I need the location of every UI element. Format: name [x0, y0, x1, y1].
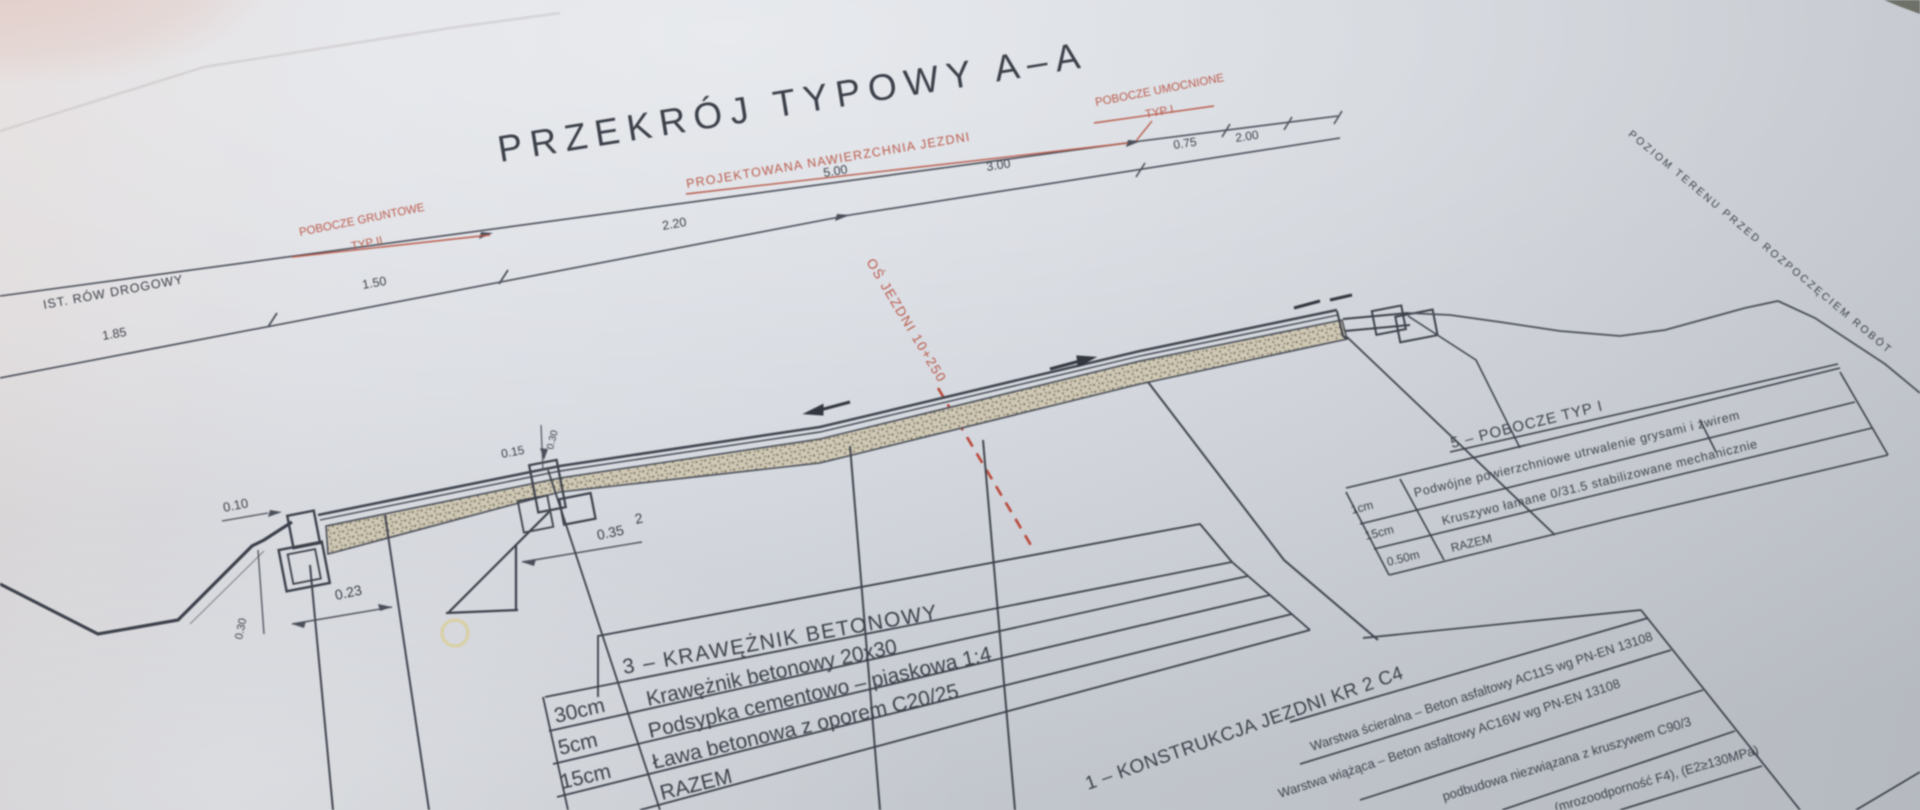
svg-text:15cm: 15cm	[558, 760, 613, 794]
svg-text:15cm: 15cm	[1363, 522, 1395, 543]
svg-text:0.50m: 0.50m	[1385, 547, 1421, 569]
svg-text:2: 2	[633, 510, 644, 527]
svg-text:1.50: 1.50	[361, 274, 387, 292]
svg-text:OŚ JEZDNI 10+250: OŚ JEZDNI 10+250	[863, 256, 949, 386]
svg-text:0.23: 0.23	[333, 582, 363, 603]
svg-text:PRZEKRÓJ TYPOWY A–A: PRZEKRÓJ TYPOWY A–A	[495, 34, 1091, 170]
svg-text:0.10: 0.10	[222, 495, 250, 515]
svg-text:2.20: 2.20	[661, 215, 687, 233]
svg-text:0.30: 0.30	[233, 617, 249, 640]
svg-text:5 – POBOCZE TYP I: 5 – POBOCZE TYP I	[1449, 398, 1605, 452]
svg-text:0.15: 0.15	[500, 443, 526, 461]
svg-text:30cm: 30cm	[552, 694, 607, 728]
svg-text:IST. RÓW DROGOWY: IST. RÓW DROGOWY	[42, 271, 185, 312]
svg-text:PROJEKTOWANA NAWIERZCHNIA JEZD: PROJEKTOWANA NAWIERZCHNIA JEZDNI	[685, 130, 971, 191]
svg-text:1.85: 1.85	[101, 325, 127, 343]
svg-text:POBOCZE GRUNTOWE: POBOCZE GRUNTOWE	[298, 202, 426, 239]
svg-text:2.00: 2.00	[1234, 128, 1259, 145]
svg-text:1cm: 1cm	[1349, 498, 1374, 517]
svg-text:0.30: 0.30	[545, 429, 560, 451]
svg-text:RAZEM: RAZEM	[658, 765, 735, 805]
svg-text:0.35: 0.35	[595, 522, 625, 543]
svg-text:0.75: 0.75	[1172, 135, 1197, 152]
svg-text:POZIOM TERENU PRZED ROZPOCZĘCI: POZIOM TERENU PRZED ROZPOCZĘCIEM ROBÓT	[1626, 128, 1896, 357]
svg-text:POBOCZE UMOCNIONE: POBOCZE UMOCNIONE	[1094, 72, 1225, 109]
